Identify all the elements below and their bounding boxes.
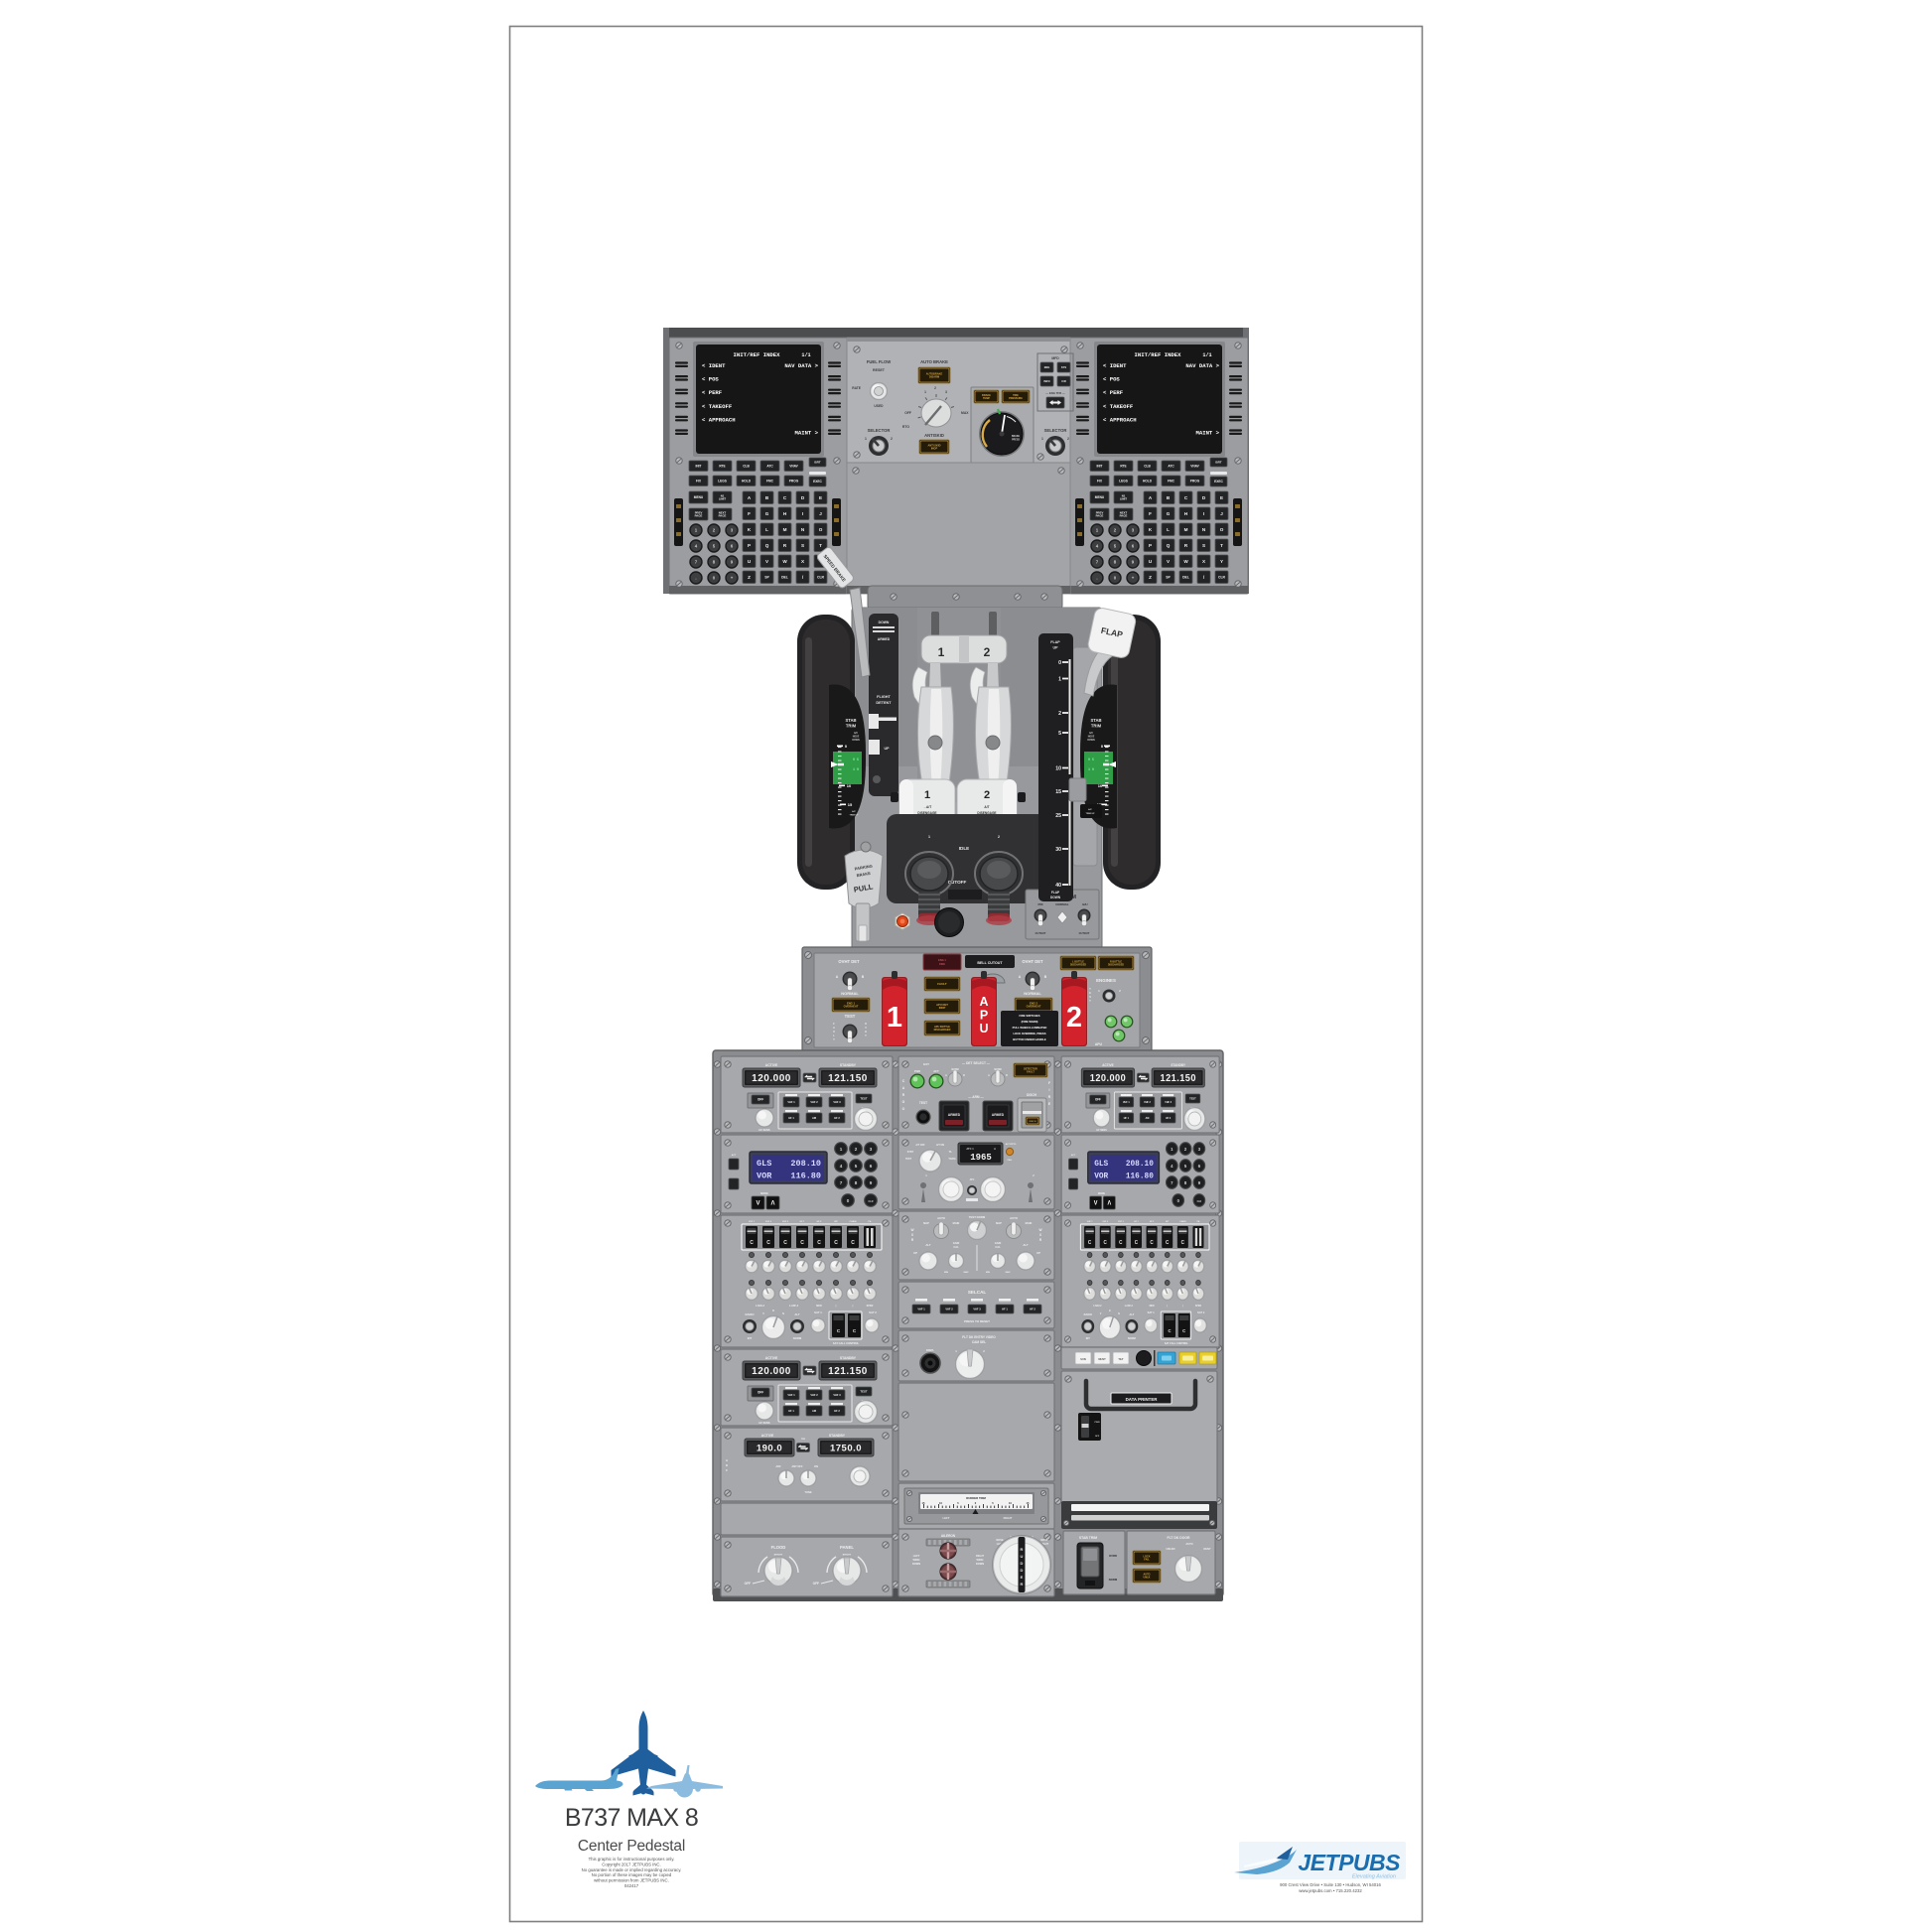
svg-text:MIN: MIN	[986, 1272, 990, 1274]
svg-text:MAX: MAX	[1006, 1271, 1011, 1274]
svg-text:VNAV: VNAV	[1190, 464, 1199, 468]
svg-text:No portion of these images may: No portion of these images may be copied	[592, 1872, 672, 1877]
svg-text:E: E	[819, 495, 822, 500]
svg-text:OFF: OFF	[904, 411, 911, 415]
svg-text:PRI: PRI	[1037, 902, 1042, 906]
svg-text:121.150: 121.150	[828, 1366, 868, 1377]
svg-text:RIGHT: RIGHT	[976, 1554, 984, 1558]
svg-text:OVRD: OVRD	[1109, 1554, 1117, 1558]
svg-text:SUN: SUN	[1080, 1357, 1086, 1361]
svg-text:< PERF: < PERF	[702, 389, 723, 396]
svg-text:VNAV: VNAV	[789, 464, 798, 468]
svg-text:STAB TRIM: STAB TRIM	[1079, 1536, 1097, 1540]
svg-text:CLB: CLB	[1144, 464, 1151, 468]
svg-text:208.10: 208.10	[1126, 1160, 1154, 1169]
svg-text:FUEL FLOW: FUEL FLOW	[867, 359, 891, 364]
svg-text:UP: UP	[1036, 1251, 1040, 1255]
svg-text:APU: APU	[1095, 1042, 1103, 1046]
svg-text:ANT: ANT	[791, 1464, 797, 1468]
svg-text:VHF 3: VHF 3	[1165, 1101, 1172, 1104]
svg-text:< APPROACH: < APPROACH	[702, 416, 736, 423]
svg-text:Y: Y	[1220, 559, 1223, 564]
svg-text:TEST: TEST	[845, 1014, 856, 1019]
svg-text:ACTIVE: ACTIVE	[1102, 1063, 1114, 1067]
svg-text:PAGE: PAGE	[1120, 514, 1128, 518]
svg-text:15: 15	[848, 802, 853, 807]
svg-text:S: S	[1202, 543, 1205, 548]
svg-text:Copyright 2017 JETPUBS INC.: Copyright 2017 JETPUBS INC.	[602, 1862, 660, 1866]
svg-text:9: 9	[870, 1180, 873, 1185]
svg-text:HF 1: HF 1	[1124, 1117, 1130, 1120]
svg-text:TILT: TILT	[1118, 1357, 1124, 1361]
svg-text:RTO: RTO	[902, 425, 909, 429]
svg-text:15: 15	[1055, 789, 1061, 795]
svg-text:+: +	[1132, 576, 1135, 581]
svg-text:A/C: A/C	[1089, 732, 1093, 735]
svg-text:Z: Z	[748, 575, 751, 580]
svg-text:USED: USED	[874, 404, 884, 408]
svg-text:PRESS TO RESET: PRESS TO RESET	[964, 1319, 990, 1323]
svg-text:VHF 2: VHF 2	[945, 1307, 953, 1311]
svg-text:JETPUBS: JETPUBS	[1298, 1850, 1401, 1875]
svg-text:121.150: 121.150	[828, 1073, 868, 1084]
svg-text:WING: WING	[976, 1558, 983, 1562]
svg-text:Elevating Aviation: Elevating Aviation	[1352, 1874, 1396, 1880]
svg-text:UP: UP	[913, 1251, 917, 1255]
svg-text:L: L	[1167, 527, 1170, 532]
svg-text:PANEL: PANEL	[840, 1545, 854, 1550]
svg-text:TA/RA: TA/RA	[948, 1158, 955, 1161]
svg-text:SELECTOR: SELECTOR	[1044, 428, 1067, 433]
svg-text:NAV DATA >: NAV DATA >	[1185, 362, 1219, 369]
svg-text:B: B	[772, 1310, 774, 1312]
svg-text:B/U: B/U	[1082, 902, 1087, 906]
svg-text:CABIN: CABIN	[850, 1220, 857, 1223]
svg-text:C: C	[766, 1240, 770, 1246]
svg-text:ALT: ALT	[925, 1243, 931, 1247]
svg-text:AFT: AFT	[933, 1069, 939, 1073]
svg-text:A/T: A/T	[984, 805, 989, 809]
svg-text:MAINT >: MAINT >	[1196, 430, 1220, 437]
svg-text:40: 40	[1055, 883, 1061, 889]
svg-text:C: C	[851, 1240, 855, 1246]
svg-text:SELECTOR: SELECTOR	[868, 428, 891, 433]
svg-text:G: G	[902, 1100, 905, 1104]
svg-text:CAL: CAL	[953, 1245, 959, 1249]
svg-text:ON: ON	[814, 1464, 818, 1468]
svg-text:ARMED: ARMED	[878, 637, 891, 641]
svg-text:2: 2	[984, 645, 991, 659]
svg-text:MAP: MAP	[923, 1221, 929, 1225]
svg-text:120.000: 120.000	[752, 1366, 791, 1377]
svg-text:DEL: DEL	[1182, 575, 1189, 579]
svg-text:PROG: PROG	[789, 479, 799, 483]
svg-text:VHF 3: VHF 3	[833, 1100, 841, 1104]
svg-text:< IDENT: < IDENT	[702, 362, 726, 369]
svg-text:FAULT: FAULT	[937, 982, 947, 986]
svg-text:— ARM —: — ARM —	[968, 1095, 984, 1099]
svg-text:MFD: MFD	[1051, 356, 1059, 360]
svg-text:10: 10	[847, 783, 852, 788]
svg-text:CLR: CLR	[1197, 1201, 1202, 1203]
svg-text:EXEC: EXEC	[1214, 480, 1223, 483]
svg-text:RESET: RESET	[873, 368, 886, 372]
svg-text:A: A	[833, 1027, 835, 1030]
svg-text:0: 0	[1058, 660, 1061, 666]
svg-text:4: 4	[840, 1164, 843, 1169]
svg-text:3: 3	[870, 1147, 873, 1152]
svg-text:CLR: CLR	[1218, 575, 1226, 579]
svg-text:O: O	[865, 1023, 867, 1026]
svg-text:TA: TA	[948, 1151, 951, 1154]
svg-text:H: H	[865, 1031, 867, 1034]
svg-text:PA: PA	[869, 1220, 872, 1223]
svg-text:SYS: SYS	[1061, 365, 1066, 369]
svg-text:NORMAL: NORMAL	[1055, 902, 1068, 906]
svg-text:MAX: MAX	[961, 411, 969, 415]
svg-text:TEST: TEST	[905, 1158, 912, 1161]
svg-text:ARMED: ARMED	[992, 1113, 1005, 1117]
svg-text:7: 7	[840, 1180, 843, 1185]
svg-text:NAV DATA >: NAV DATA >	[784, 362, 818, 369]
svg-text:LEGS: LEGS	[718, 479, 727, 483]
svg-text:www.jetpubs.com • 715.220.4232: www.jetpubs.com • 715.220.4232	[1299, 1888, 1362, 1893]
svg-text:BRIGHT: BRIGHT	[843, 1555, 852, 1557]
svg-text:VHF 3: VHF 3	[1118, 1221, 1125, 1223]
svg-text:INOP: INOP	[939, 1006, 946, 1010]
svg-text:OVHT DET: OVHT DET	[838, 959, 860, 964]
svg-text:LIMIT: LIMIT	[1120, 497, 1128, 501]
svg-text:MAINT >: MAINT >	[795, 430, 819, 437]
svg-text:GLS: GLS	[1094, 1160, 1108, 1169]
svg-text:1750.0: 1750.0	[830, 1443, 862, 1453]
svg-text:VHF 1: VHF 1	[917, 1307, 925, 1311]
svg-text:PULL WHEN ILLUMINATED: PULL WHEN ILLUMINATED	[1013, 1026, 1047, 1030]
svg-text:VHF 1: VHF 1	[787, 1393, 795, 1397]
svg-text:U: U	[979, 1022, 988, 1035]
svg-text:+: +	[731, 576, 734, 581]
svg-text:FIX: FIX	[696, 479, 702, 483]
svg-text:PRESSURE: PRESSURE	[1009, 397, 1023, 400]
svg-text:< TAKEOFF: < TAKEOFF	[702, 403, 733, 410]
svg-text:1965: 1965	[970, 1153, 992, 1163]
svg-text:UNLK: UNLK	[1144, 1576, 1151, 1579]
svg-text:VHF 1: VHF 1	[787, 1100, 795, 1104]
svg-text:DEL: DEL	[781, 575, 788, 579]
svg-text:120.000: 120.000	[752, 1073, 791, 1084]
svg-text:A: A	[994, 1147, 996, 1151]
svg-text:LIMIT: LIMIT	[719, 497, 727, 501]
svg-text:NOSE: NOSE	[1088, 737, 1095, 739]
svg-text:VHF 3: VHF 3	[973, 1307, 981, 1311]
svg-text:ATC 1: ATC 1	[966, 1147, 974, 1151]
svg-text:A: A	[979, 995, 988, 1009]
svg-text:V: V	[1094, 1200, 1098, 1206]
svg-text:OFF: OFF	[813, 1582, 819, 1586]
svg-text:042417: 042417	[624, 1883, 639, 1888]
svg-text:Λ: Λ	[1108, 1200, 1112, 1206]
svg-text:< POS: < POS	[702, 376, 719, 383]
svg-text:0 5: 0 5	[853, 759, 859, 762]
svg-text:10: 10	[1055, 765, 1061, 771]
svg-text:ACTIVE: ACTIVE	[765, 1063, 778, 1067]
svg-text:P: P	[1149, 543, 1152, 548]
svg-text:Z: Z	[1149, 575, 1152, 580]
svg-text:U: U	[833, 1031, 835, 1034]
svg-text:C: C	[817, 1240, 821, 1246]
svg-text:O: O	[1220, 527, 1224, 532]
svg-text:3: 3	[945, 390, 947, 394]
svg-text:ALT: ALT	[1129, 1312, 1134, 1316]
svg-text:T: T	[1220, 543, 1223, 548]
svg-text:A: A	[945, 1074, 947, 1077]
svg-text:TEMP: TEMP	[983, 397, 990, 400]
svg-text:DOWN: DOWN	[879, 621, 890, 624]
svg-text:(FIRE WARN): (FIRE WARN)	[1022, 1020, 1038, 1024]
svg-text:U: U	[1021, 1554, 1024, 1559]
svg-text:C: C	[1135, 1240, 1139, 1246]
svg-text:SAT 2: SAT 2	[1197, 1311, 1205, 1314]
svg-text:VHF 2: VHF 2	[810, 1393, 818, 1397]
svg-text:C: C	[750, 1240, 754, 1246]
svg-text:SAT CALL CONTROL: SAT CALL CONTROL	[1165, 1342, 1188, 1345]
svg-text:VHF 2: VHF 2	[1144, 1101, 1151, 1104]
svg-text:VHF 3: VHF 3	[833, 1393, 841, 1397]
svg-text:2: 2	[891, 437, 893, 441]
svg-text:GAIN: GAIN	[953, 1241, 960, 1245]
svg-text:J: J	[1220, 511, 1223, 516]
svg-text:INFO: INFO	[1043, 379, 1049, 383]
svg-text:HF SENS: HF SENS	[759, 1128, 770, 1132]
svg-text:116.80: 116.80	[790, 1172, 821, 1181]
svg-text:M: M	[783, 527, 787, 532]
svg-text:P: P	[748, 543, 751, 548]
svg-text:F: F	[1048, 1081, 1050, 1085]
svg-text:OFF: OFF	[758, 1098, 763, 1102]
svg-text:DOWN: DOWN	[852, 740, 860, 742]
svg-text:STANDBY: STANDBY	[829, 1434, 846, 1438]
svg-text:ALT RPTG: ALT RPTG	[1006, 1143, 1017, 1146]
svg-text:2: 2	[984, 789, 990, 801]
svg-text:AUTO: AUTO	[937, 1216, 946, 1220]
svg-text:TRIM UP: TRIM UP	[850, 815, 860, 817]
svg-text:FLT DK DOOR: FLT DK DOOR	[1168, 1536, 1190, 1540]
svg-text:STBY: STBY	[907, 1151, 914, 1154]
svg-text:8: 8	[855, 1180, 858, 1185]
svg-text:LEFT: LEFT	[943, 1516, 950, 1520]
svg-text:DOWN: DOWN	[976, 1562, 984, 1566]
svg-text:WING: WING	[912, 1558, 919, 1562]
svg-text:1: 1	[865, 437, 867, 441]
svg-text:DISCHARGED: DISCHARGED	[1070, 963, 1086, 966]
svg-text:< POS: < POS	[1103, 376, 1120, 383]
svg-text:SAT 2: SAT 2	[869, 1311, 877, 1314]
svg-text:FLAP: FLAP	[1050, 640, 1060, 644]
svg-text:HF 1: HF 1	[800, 1221, 806, 1223]
svg-text:without permission from JETPUB: without permission from JETPUBS INC.	[594, 1878, 669, 1883]
svg-text:CLR: CLR	[869, 1200, 874, 1203]
svg-text:< PERF: < PERF	[1103, 389, 1124, 396]
svg-text:6: 6	[870, 1164, 873, 1169]
svg-text:PROG: PROG	[1190, 479, 1200, 483]
svg-text:B737 MAX 8: B737 MAX 8	[565, 1804, 698, 1832]
svg-text:NORM: NORM	[1109, 1578, 1118, 1582]
svg-text:INOP: INOP	[931, 447, 938, 451]
svg-text:DISCH: DISCH	[1027, 1093, 1037, 1097]
svg-text:C: C	[1166, 1240, 1170, 1246]
svg-text:RIGHT: RIGHT	[1004, 1516, 1013, 1520]
svg-text:1: 1	[1058, 676, 1061, 682]
svg-text:P: P	[980, 1009, 988, 1023]
svg-text:DISCHARGED: DISCHARGED	[1108, 963, 1124, 966]
svg-text:1/1: 1/1	[801, 352, 810, 358]
svg-text:VOR: VOR	[1094, 1172, 1108, 1180]
svg-text:PA: PA	[1197, 1220, 1200, 1223]
svg-text:B: B	[963, 1074, 965, 1077]
svg-text:2: 2	[855, 1147, 858, 1152]
svg-text:HOLD: HOLD	[742, 479, 752, 483]
svg-text:INIT: INIT	[1096, 464, 1102, 468]
svg-text:ACTIVE: ACTIVE	[765, 1356, 778, 1360]
svg-text:1: 1	[887, 1002, 902, 1034]
svg-text:EXT: EXT	[923, 1062, 929, 1066]
svg-text:SP: SP	[764, 575, 769, 579]
svg-text:NORMAL: NORMAL	[1024, 991, 1041, 996]
svg-text:V: V	[756, 1201, 759, 1207]
svg-text:1-NAV-2: 1-NAV-2	[1093, 1305, 1102, 1308]
svg-text:1: 1	[840, 1147, 843, 1152]
svg-text:LEFT: LEFT	[913, 1554, 920, 1558]
svg-text:ATC: ATC	[970, 1178, 975, 1181]
svg-text:STANDBY: STANDBY	[1171, 1063, 1186, 1067]
svg-text:I: I	[1203, 511, 1204, 516]
svg-text:HOLD: HOLD	[1143, 479, 1153, 483]
svg-text:CAL: CAL	[995, 1245, 1001, 1249]
svg-text:VHF 2: VHF 2	[1102, 1221, 1109, 1223]
svg-text:2: 2	[1066, 1002, 1082, 1034]
svg-text:MENU: MENU	[694, 495, 704, 499]
svg-text:1 0: 1 0	[853, 768, 859, 772]
svg-text:HF 1: HF 1	[1002, 1307, 1008, 1311]
svg-text:This graphic is for instructio: This graphic is for instructional purpos…	[589, 1857, 675, 1862]
svg-text:30: 30	[1055, 847, 1061, 853]
svg-text:DISARM: DISARM	[929, 375, 939, 379]
svg-text:RADIO: RADIO	[1084, 1312, 1092, 1316]
svg-text:BRT: BRT	[1215, 461, 1221, 465]
svg-text:VOR: VOR	[757, 1172, 772, 1181]
svg-text:D: D	[1021, 1568, 1024, 1573]
svg-text:AUTO: AUTO	[1010, 1216, 1019, 1220]
svg-text:FMC: FMC	[766, 479, 774, 483]
svg-text:1-NAV-2: 1-NAV-2	[756, 1305, 765, 1308]
svg-text:R: R	[1021, 1582, 1024, 1587]
svg-text:CLR: CLR	[817, 575, 825, 579]
svg-text:BRIGHT: BRIGHT	[774, 1555, 783, 1557]
svg-text:F: F	[1149, 511, 1152, 516]
svg-text:ACT: ACT	[732, 1154, 737, 1157]
svg-text:MAX: MAX	[964, 1271, 969, 1274]
svg-text:SAT CALL CONTROL: SAT CALL CONTROL	[833, 1341, 860, 1345]
svg-text:OFF: OFF	[758, 1391, 763, 1395]
svg-text:NOSE: NOSE	[853, 737, 860, 739]
svg-text:DISPL: DISPL	[926, 1348, 935, 1352]
svg-text:OFF: OFF	[1095, 1097, 1101, 1101]
svg-text:MENU: MENU	[1095, 495, 1105, 499]
svg-text:VHF 1: VHF 1	[1087, 1221, 1094, 1223]
svg-text:DISCHARGED: DISCHARGED	[934, 1029, 951, 1032]
svg-text:CUTOUT: CUTOUT	[1035, 931, 1046, 935]
svg-text:208.10: 208.10	[790, 1159, 821, 1169]
svg-text:25: 25	[1055, 813, 1061, 819]
svg-text:No guarantee is made or implie: No guarantee is made or implied regardin…	[582, 1867, 682, 1872]
svg-text:.: .	[1096, 576, 1097, 581]
svg-text:1: 1	[924, 390, 926, 394]
svg-text:RTE: RTE	[1120, 464, 1126, 468]
svg-text:PRESS: PRESS	[1012, 440, 1020, 442]
svg-text:MKR: MKR	[1150, 1306, 1155, 1308]
svg-text:CLB: CLB	[743, 464, 750, 468]
svg-text:FIX: FIX	[1097, 479, 1103, 483]
svg-text:INIT/REF INDEX: INIT/REF INDEX	[1135, 351, 1182, 358]
svg-text:FAIL: FAIL	[1008, 1159, 1013, 1162]
svg-text:RATE: RATE	[852, 386, 862, 390]
svg-text:SAT 1: SAT 1	[1148, 1311, 1156, 1314]
svg-text:FMC: FMC	[1168, 479, 1175, 483]
svg-text:A/T OFF: A/T OFF	[915, 1144, 925, 1147]
svg-text:SP: SP	[1166, 575, 1171, 579]
svg-text:.: .	[695, 576, 696, 581]
svg-text:TRIM UP: TRIM UP	[1086, 813, 1096, 815]
svg-text:ENG: ENG	[1044, 365, 1050, 369]
svg-text:OVERHEAT: OVERHEAT	[1027, 1005, 1041, 1009]
svg-text:SPKR: SPKR	[1195, 1306, 1201, 1308]
svg-text:DETENT: DETENT	[876, 701, 892, 705]
svg-text:TFR: TFR	[801, 1439, 806, 1441]
svg-text:ATC: ATC	[766, 464, 773, 468]
svg-text:Q: Q	[1167, 543, 1171, 548]
svg-text:LOCK OVERRIDE, PRESS: LOCK OVERRIDE, PRESS	[1013, 1032, 1045, 1035]
svg-text:VHF 2: VHF 2	[810, 1100, 818, 1104]
svg-text:TEST: TEST	[860, 1390, 867, 1394]
svg-text:ALT: ALT	[794, 1312, 800, 1316]
svg-text:AM: AM	[1146, 1117, 1150, 1120]
svg-text:A/C: A/C	[854, 732, 858, 735]
svg-text:ALT: ALT	[1023, 1243, 1029, 1247]
svg-text:C: C	[1150, 1240, 1154, 1246]
svg-text:INIT/REF INDEX: INIT/REF INDEX	[734, 351, 781, 358]
svg-text:TEST NORM: TEST NORM	[969, 1215, 986, 1219]
svg-text:C: C	[1088, 1240, 1092, 1246]
svg-text:C: C	[783, 1240, 787, 1246]
svg-text:C: C	[1104, 1240, 1108, 1246]
svg-text:TEST: TEST	[860, 1097, 867, 1101]
svg-text:HF 2: HF 2	[1030, 1307, 1035, 1311]
svg-text:I: I	[802, 511, 803, 516]
svg-text:PAGE: PAGE	[1096, 514, 1104, 518]
svg-text:0: 0	[847, 1198, 850, 1203]
svg-text:T: T	[819, 543, 822, 548]
svg-text:NOSE: NOSE	[1040, 1538, 1048, 1542]
svg-text:< APPROACH: < APPROACH	[1103, 416, 1137, 423]
svg-text:— DET SELECT —: — DET SELECT —	[962, 1061, 991, 1065]
svg-text:HF 2: HF 2	[834, 1116, 840, 1120]
svg-text:SPKR: SPKR	[867, 1305, 874, 1308]
svg-text:W: W	[1038, 1228, 1041, 1232]
svg-text:NORMAL: NORMAL	[841, 991, 859, 996]
svg-text:TEST: TEST	[919, 1101, 927, 1105]
svg-text:FAULT: FAULT	[1027, 1070, 1035, 1073]
svg-text:MIN: MIN	[944, 1272, 948, 1274]
